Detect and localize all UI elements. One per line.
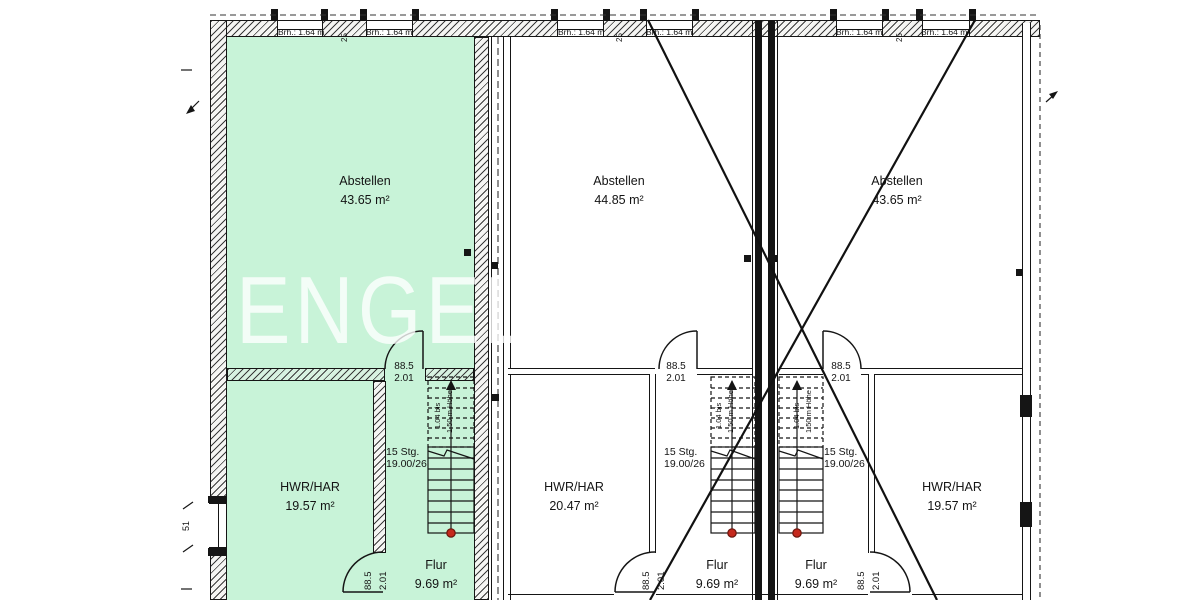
understair-label: 1.04 bis xyxy=(433,403,442,429)
understair-label: 1.50 m Höhe xyxy=(726,390,735,433)
room-label-abstellen-middle: Abstellen 44.85 m² xyxy=(569,172,669,210)
cross-out-line-1 xyxy=(648,20,937,600)
room-name: Flur xyxy=(386,556,486,575)
room-area: 20.47 m² xyxy=(524,497,624,516)
wall-middle-hwr-right xyxy=(649,374,656,553)
jamb xyxy=(969,9,976,21)
door-dim-bottom-middle-h: 2.01 xyxy=(656,572,667,591)
party-wall-outline-right xyxy=(777,20,778,600)
wall-right-pier-lower xyxy=(1020,502,1032,527)
wall-middle-unit-left xyxy=(503,37,511,600)
door-width: 88.5 xyxy=(655,361,697,373)
understair-label: 1.04 bis xyxy=(792,403,801,429)
party-wall-leaf-1 xyxy=(755,20,762,600)
parapet-label: Brh.: 1.64 m xyxy=(366,27,412,37)
stair-start-dot xyxy=(793,529,801,537)
door-width: 88.5 xyxy=(383,361,425,373)
party-wall-outline-left xyxy=(752,20,753,600)
wall-right-hwr-left xyxy=(868,374,875,553)
wall-abstellen-divider-left xyxy=(227,368,385,381)
understair-label: 1.50 m Höhe xyxy=(804,390,813,433)
room-label-abstellen-left: Abstellen 43.65 m² xyxy=(315,172,415,210)
window-left-wall-jamb-bottom xyxy=(208,548,226,556)
room-name: HWR/HAR xyxy=(902,478,1002,497)
pier-dim-label: 25 xyxy=(895,33,904,42)
wall-bottom-edge-1 xyxy=(508,594,614,595)
room-label-flur-middle: Flur 9.69 m² xyxy=(667,556,767,594)
room-name: Abstellen xyxy=(315,172,415,191)
door-height: 2.01 xyxy=(383,373,425,385)
parapet-label: Brh.: 1.64 m xyxy=(836,27,882,37)
room-area: 9.69 m² xyxy=(386,575,486,594)
room-label-hwr-middle: HWR/HAR 20.47 m² xyxy=(524,478,624,516)
stair-ratio: 19.00/26 xyxy=(824,458,865,470)
room-name: HWR/HAR xyxy=(260,478,360,497)
room-label-abstellen-right: Abstellen 43.65 m² xyxy=(847,172,947,210)
room-name: Flur xyxy=(667,556,767,575)
room-area: 19.57 m² xyxy=(260,497,360,516)
wall-bottom-edge-2 xyxy=(656,594,868,595)
door-width: 88.5 xyxy=(820,361,862,373)
jamb xyxy=(412,9,419,21)
party-wall-leaf-2 xyxy=(768,20,775,600)
room-name: HWR/HAR xyxy=(524,478,624,497)
room-label-flur-right: Flur 9.69 m² xyxy=(766,556,866,594)
wall-right-stair-edge xyxy=(779,368,823,375)
room-area: 43.65 m² xyxy=(847,191,947,210)
room-area: 19.57 m² xyxy=(902,497,1002,516)
understair-label: 1.50 m Höhe xyxy=(445,390,454,433)
room-label-flur-left: Flur 9.69 m² xyxy=(386,556,486,594)
stair-label-right: 15 Stg. 19.00/26 xyxy=(824,446,865,470)
wall-bottom-edge-3 xyxy=(912,594,1022,595)
wall-middle-stair-edge xyxy=(697,368,753,375)
room-area: 44.85 m² xyxy=(569,191,669,210)
parapet-label: Brh.: 1.64 m xyxy=(558,27,604,37)
arrow-bottom-left xyxy=(186,105,195,114)
room-label-hwr-left: HWR/HAR 19.57 m² xyxy=(260,478,360,516)
room-label-hwr-right: HWR/HAR 19.57 m² xyxy=(902,478,1002,516)
door-dim-bottom-right-w: 88.5 xyxy=(856,572,867,591)
room-name: Flur xyxy=(766,556,866,575)
door-dim-bottom-middle-w: 88.5 xyxy=(641,572,652,591)
wall-right-hwr-top xyxy=(861,368,1022,375)
wall-top-exterior xyxy=(210,20,1040,37)
wall-left-unit-right xyxy=(474,37,489,600)
window-left-wall-jamb-top xyxy=(208,496,226,503)
parapet-label: Brh.: 1.64 m xyxy=(921,27,967,37)
door-height: 2.01 xyxy=(655,373,697,385)
door-dim-top-middle: 88.5 2.01 xyxy=(655,361,697,385)
wall-abstellen-divider-right xyxy=(425,368,474,381)
staircase-right-unit xyxy=(779,377,823,537)
wall-middle-hwr-top xyxy=(508,368,655,375)
stair-label-middle: 15 Stg. 19.00/26 xyxy=(664,446,705,470)
room-area: 9.69 m² xyxy=(667,575,767,594)
floor-plan: Brh.: 1.64 m Brh.: 1.64 m Brh.: 1.64 m B… xyxy=(0,0,1200,600)
side-dim-label: 51 xyxy=(181,521,191,531)
boundary-line xyxy=(491,37,492,600)
room-area: 9.69 m² xyxy=(766,575,866,594)
parapet-label: Brh.: 1.64 m xyxy=(278,27,324,37)
wall-hwr-right-left-unit xyxy=(373,381,386,553)
stair-start-dot xyxy=(728,529,736,537)
stair-label-left: 15 Stg. 19.00/26 xyxy=(386,446,427,470)
arrow-top-right xyxy=(1049,91,1058,99)
room-name: Abstellen xyxy=(847,172,947,191)
door-dim-bottom-left-w: 88.5 xyxy=(363,572,374,591)
understair-label: 1.04 bis xyxy=(714,403,723,429)
jamb xyxy=(882,9,889,21)
door-height: 2.01 xyxy=(820,373,862,385)
parapet-label: Brh.: 1.64 m xyxy=(646,27,692,37)
door-dim-top-right: 88.5 2.01 xyxy=(820,361,862,385)
door-dim-top-left: 88.5 2.01 xyxy=(383,361,425,385)
jamb xyxy=(692,9,699,21)
room-name: Abstellen xyxy=(569,172,669,191)
stair-count: 15 Stg. xyxy=(386,446,427,458)
stair-count: 15 Stg. xyxy=(824,446,865,458)
door-dim-bottom-right-h: 2.01 xyxy=(871,572,882,591)
room-area: 43.65 m² xyxy=(315,191,415,210)
pier-dim-label: 25 xyxy=(340,33,349,42)
stair-count: 15 Stg. xyxy=(664,446,705,458)
door-dim-bottom-left-h: 2.01 xyxy=(378,572,389,591)
window-left-wall xyxy=(209,503,226,548)
stair-ratio: 19.00/26 xyxy=(664,458,705,470)
wall-right-pier-upper xyxy=(1020,395,1032,417)
stair-ratio: 19.00/26 xyxy=(386,458,427,470)
jamb xyxy=(603,9,610,21)
pier-dim-label: 25 xyxy=(615,33,624,42)
